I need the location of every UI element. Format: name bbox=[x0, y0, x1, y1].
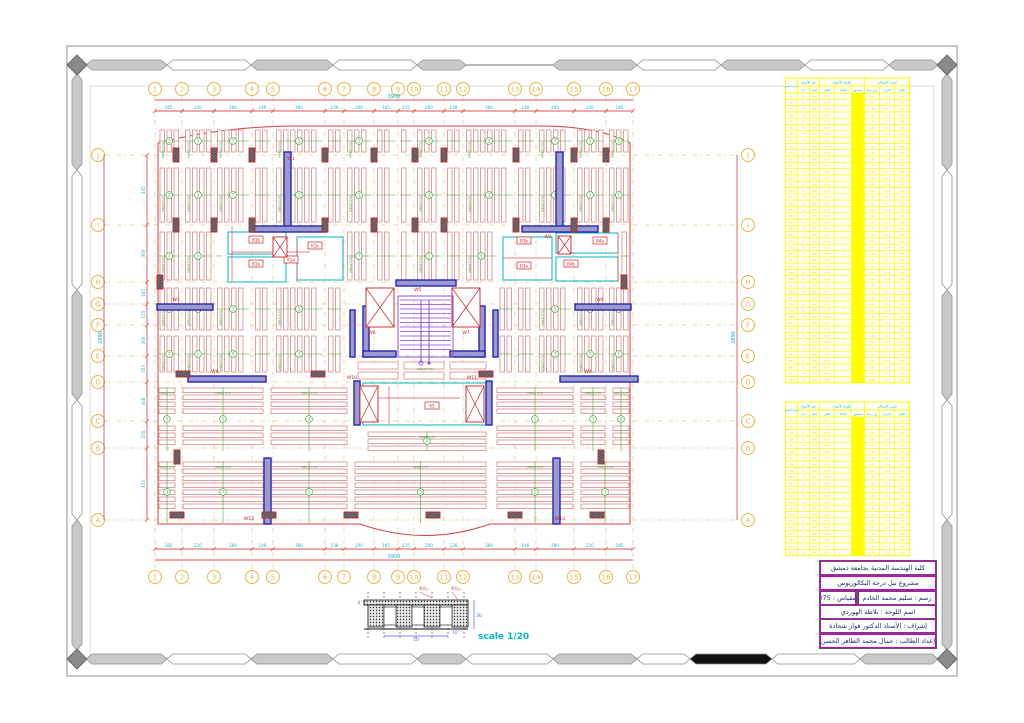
svg-text:4.25: 4.25 bbox=[824, 195, 830, 199]
svg-text:8Φ8@T/70: 8Φ8@T/70 bbox=[613, 391, 629, 395]
svg-text:168: 168 bbox=[899, 170, 905, 174]
svg-text:ـــ: ـــ bbox=[841, 481, 845, 485]
svg-text:8: 8 bbox=[803, 170, 805, 174]
svg-text:4.25: 4.25 bbox=[824, 239, 830, 243]
svg-text:0.40: 0.40 bbox=[869, 309, 875, 313]
svg-text:8: 8 bbox=[803, 359, 805, 363]
svg-text:K1b: K1b bbox=[311, 244, 319, 249]
svg-text:8: 8 bbox=[803, 220, 805, 224]
svg-text:8: 8 bbox=[803, 327, 805, 331]
svg-text:B27: B27 bbox=[789, 258, 795, 262]
svg-text:ـــ: ـــ bbox=[841, 475, 845, 479]
svg-text:ـــ: ـــ bbox=[841, 418, 845, 422]
svg-text:8Φ8@T/70: 8Φ8@T/70 bbox=[219, 355, 223, 371]
svg-text:16: 16 bbox=[602, 85, 611, 93]
svg-text:13.4: 13.4 bbox=[884, 346, 890, 350]
svg-text:Φ8/م: Φ8/م bbox=[419, 586, 429, 591]
svg-text:4.25: 4.25 bbox=[824, 450, 830, 454]
svg-text:13.4: 13.4 bbox=[884, 120, 890, 124]
svg-text:N18: N18 bbox=[789, 525, 795, 529]
svg-text:C: C bbox=[746, 417, 751, 425]
svg-text:B7: B7 bbox=[790, 132, 794, 136]
svg-text:Φ8: Φ8 bbox=[813, 246, 817, 250]
svg-text:2: 2 bbox=[180, 85, 184, 93]
svg-text:اسم العنصر: اسم العنصر bbox=[783, 408, 799, 412]
svg-text:K1a: K1a bbox=[287, 258, 295, 263]
svg-text:4.25: 4.25 bbox=[824, 488, 830, 492]
svg-text:8Φ8@T/70: 8Φ8@T/70 bbox=[301, 391, 317, 395]
svg-text:B1: B1 bbox=[790, 94, 794, 98]
svg-text:8: 8 bbox=[803, 481, 805, 485]
svg-text:ـــ: ـــ bbox=[841, 258, 845, 262]
svg-text:200: 200 bbox=[355, 105, 363, 110]
svg-text:13.4: 13.4 bbox=[884, 488, 890, 492]
svg-text:ـــ: ـــ bbox=[841, 189, 845, 193]
svg-text:ـــ: ـــ bbox=[841, 431, 845, 435]
svg-text:13.4: 13.4 bbox=[884, 519, 890, 523]
svg-text:ـــ: ـــ bbox=[841, 283, 845, 287]
svg-text:N13: N13 bbox=[789, 494, 795, 498]
svg-text:3: 3 bbox=[197, 254, 200, 259]
svg-text:0.40: 0.40 bbox=[869, 346, 875, 350]
svg-text:ـــ: ـــ bbox=[841, 113, 845, 117]
svg-text:ـــ: ـــ bbox=[841, 359, 845, 363]
svg-text:B20: B20 bbox=[789, 214, 795, 218]
svg-text:Φ8: Φ8 bbox=[813, 277, 817, 281]
svg-text:0.40: 0.40 bbox=[869, 258, 875, 262]
svg-text:5: 5 bbox=[358, 139, 361, 144]
svg-text:1: 1 bbox=[298, 307, 301, 312]
svg-text:B3: B3 bbox=[790, 107, 794, 111]
svg-text:8Φ8@T/70: 8Φ8@T/70 bbox=[187, 257, 191, 273]
svg-text:168: 168 bbox=[899, 437, 905, 441]
svg-text:5: 5 bbox=[554, 307, 557, 312]
svg-text:260: 260 bbox=[551, 105, 559, 110]
svg-text:4.25: 4.25 bbox=[824, 321, 830, 325]
svg-text:ـــ: ـــ bbox=[841, 519, 845, 523]
svg-text:14: 14 bbox=[532, 85, 541, 93]
svg-text:ـــ: ـــ bbox=[841, 101, 845, 105]
svg-text:N6: N6 bbox=[790, 450, 794, 454]
svg-text:8: 8 bbox=[803, 296, 805, 300]
svg-text:5: 5 bbox=[232, 352, 235, 357]
svg-text:0.40: 0.40 bbox=[869, 183, 875, 187]
svg-text:13.4: 13.4 bbox=[884, 538, 890, 542]
svg-text:7: 7 bbox=[168, 352, 171, 357]
svg-text:الجزئي: الجزئي bbox=[883, 89, 891, 92]
svg-text:13.4: 13.4 bbox=[884, 164, 890, 168]
svg-text:0.40: 0.40 bbox=[869, 157, 875, 161]
svg-text:ـــ: ـــ bbox=[841, 372, 845, 376]
svg-text:ـــ: ـــ bbox=[841, 365, 845, 369]
svg-text:4.25: 4.25 bbox=[824, 315, 830, 319]
svg-text:Φ8: Φ8 bbox=[813, 302, 817, 306]
svg-text:5: 5 bbox=[166, 417, 169, 422]
svg-text:8: 8 bbox=[803, 444, 805, 448]
svg-text:168: 168 bbox=[899, 481, 905, 485]
svg-text:ـــ: ـــ bbox=[841, 321, 845, 325]
svg-text:0.40: 0.40 bbox=[869, 525, 875, 529]
svg-text:عدد الأسياخ: عدد الأسياخ bbox=[801, 404, 816, 409]
svg-text:B38: B38 bbox=[789, 327, 795, 331]
svg-text:13.4: 13.4 bbox=[884, 271, 890, 275]
svg-text:Φ8: Φ8 bbox=[813, 290, 817, 294]
svg-text:115: 115 bbox=[402, 105, 410, 110]
svg-text:ـــ: ـــ bbox=[841, 271, 845, 275]
svg-text:ـــ: ـــ bbox=[841, 170, 845, 174]
svg-text:0.40: 0.40 bbox=[869, 176, 875, 180]
svg-text:Φ8: Φ8 bbox=[813, 220, 817, 224]
svg-text:ـــ: ـــ bbox=[841, 277, 845, 281]
svg-text:N17: N17 bbox=[789, 519, 795, 523]
svg-text:0.40: 0.40 bbox=[869, 321, 875, 325]
svg-text:Φ8: Φ8 bbox=[813, 239, 817, 243]
svg-text:W8: W8 bbox=[211, 369, 218, 375]
svg-text:168: 168 bbox=[899, 138, 905, 142]
svg-text:4.25: 4.25 bbox=[824, 271, 830, 275]
svg-text:B31: B31 bbox=[789, 283, 795, 287]
svg-text:0.40: 0.40 bbox=[869, 220, 875, 224]
svg-text:الكلي: الكلي bbox=[899, 89, 905, 92]
svg-text:G: G bbox=[95, 300, 100, 308]
svg-text:0.40: 0.40 bbox=[869, 126, 875, 130]
svg-text:4.25: 4.25 bbox=[824, 346, 830, 350]
svg-text:4.25: 4.25 bbox=[824, 283, 830, 287]
svg-text:Φ8: Φ8 bbox=[813, 378, 817, 382]
svg-text:8: 8 bbox=[803, 201, 805, 205]
svg-text:Φ8: Φ8 bbox=[813, 214, 817, 218]
svg-text:1: 1 bbox=[298, 139, 301, 144]
svg-text:13.4: 13.4 bbox=[884, 309, 890, 313]
svg-text:W6: W6 bbox=[368, 330, 375, 336]
svg-text:4: 4 bbox=[250, 85, 255, 93]
svg-text:8: 8 bbox=[803, 462, 805, 466]
svg-text:G: G bbox=[745, 300, 750, 308]
svg-text:8Φ8@T/70: 8Φ8@T/70 bbox=[417, 367, 433, 371]
svg-text:N16: N16 bbox=[789, 513, 795, 517]
svg-text:ـــ: ـــ bbox=[841, 346, 845, 350]
svg-text:8: 8 bbox=[803, 252, 805, 256]
svg-text:Φ8: Φ8 bbox=[813, 195, 817, 199]
svg-text:Φ8: Φ8 bbox=[813, 334, 817, 338]
svg-text:Φ8: Φ8 bbox=[813, 296, 817, 300]
svg-text:8Φ8@T/70: 8Φ8@T/70 bbox=[159, 391, 175, 395]
svg-text:4.25: 4.25 bbox=[824, 500, 830, 504]
svg-text:ـــ: ـــ bbox=[841, 220, 845, 224]
svg-text:8: 8 bbox=[803, 532, 805, 536]
svg-text:0.40: 0.40 bbox=[869, 189, 875, 193]
svg-text:4.25: 4.25 bbox=[824, 507, 830, 511]
svg-text:Φ8: Φ8 bbox=[813, 201, 817, 205]
svg-text:0.40: 0.40 bbox=[869, 246, 875, 250]
svg-text:3: 3 bbox=[554, 352, 557, 357]
svg-text:0.40: 0.40 bbox=[869, 296, 875, 300]
svg-text:4.25: 4.25 bbox=[824, 425, 830, 429]
svg-text:3: 3 bbox=[488, 139, 491, 144]
svg-text:8: 8 bbox=[803, 101, 805, 105]
svg-text:Φ8: Φ8 bbox=[813, 551, 817, 555]
svg-text:8: 8 bbox=[803, 277, 805, 281]
svg-text:Φ8: Φ8 bbox=[813, 513, 817, 517]
svg-text:0.40: 0.40 bbox=[869, 271, 875, 275]
svg-text:Φ8: Φ8 bbox=[813, 126, 817, 130]
svg-text:Φ8: Φ8 bbox=[813, 544, 817, 548]
svg-text:8Φ8@T/70: 8Φ8@T/70 bbox=[187, 355, 191, 371]
svg-text:130: 130 bbox=[450, 543, 458, 548]
svg-text:Φ8: Φ8 bbox=[813, 233, 817, 237]
svg-text:1: 1 bbox=[308, 490, 311, 495]
svg-text:13.4: 13.4 bbox=[884, 138, 890, 142]
svg-text:8: 8 bbox=[803, 538, 805, 542]
svg-text:الشكل: الشكل bbox=[839, 89, 847, 92]
svg-text:8Φ8@T/70: 8Φ8@T/70 bbox=[215, 391, 231, 395]
svg-text:4.25: 4.25 bbox=[824, 227, 830, 231]
svg-text:4.25: 4.25 bbox=[824, 220, 830, 224]
svg-text:0.40: 0.40 bbox=[869, 437, 875, 441]
svg-text:13.4: 13.4 bbox=[884, 475, 890, 479]
svg-text:4.25: 4.25 bbox=[824, 183, 830, 187]
svg-text:0.40: 0.40 bbox=[869, 519, 875, 523]
svg-text:Φ8: Φ8 bbox=[813, 469, 817, 473]
svg-text:13.4: 13.4 bbox=[884, 431, 890, 435]
svg-text:8Φ8@T/70: 8Φ8@T/70 bbox=[527, 391, 543, 395]
svg-text:Φ8: Φ8 bbox=[813, 494, 817, 498]
svg-text:4.25: 4.25 bbox=[824, 113, 830, 117]
svg-text:B4b: B4b bbox=[567, 262, 575, 267]
svg-text:4.25: 4.25 bbox=[824, 107, 830, 111]
svg-text:9: 9 bbox=[396, 85, 400, 93]
svg-text:Φ8: Φ8 bbox=[813, 456, 817, 460]
svg-text:8: 8 bbox=[803, 551, 805, 555]
svg-text:11: 11 bbox=[440, 573, 449, 581]
svg-text:Φ8: Φ8 bbox=[813, 145, 817, 149]
svg-text:0.40: 0.40 bbox=[869, 120, 875, 124]
svg-text:8Φ8@T/70: 8Φ8@T/70 bbox=[278, 196, 282, 212]
svg-text:8: 8 bbox=[803, 113, 805, 117]
svg-text:Φ8: Φ8 bbox=[813, 315, 817, 319]
svg-text:8Φ8@T/70: 8Φ8@T/70 bbox=[611, 310, 615, 326]
svg-text:2: 2 bbox=[534, 490, 537, 495]
svg-text:B37: B37 bbox=[789, 321, 795, 325]
svg-text:7: 7 bbox=[232, 139, 235, 144]
svg-text:13.4: 13.4 bbox=[884, 544, 890, 548]
svg-text:5: 5 bbox=[358, 193, 361, 198]
svg-text:13.4: 13.4 bbox=[884, 494, 890, 498]
svg-text:360: 360 bbox=[295, 543, 303, 548]
svg-text:8Φ8@T/70: 8Φ8@T/70 bbox=[468, 142, 472, 158]
svg-text:0.40: 0.40 bbox=[869, 264, 875, 268]
svg-text:168: 168 bbox=[899, 126, 905, 130]
svg-text:168: 168 bbox=[899, 239, 905, 243]
svg-text:4.25: 4.25 bbox=[824, 145, 830, 149]
svg-text:N11: N11 bbox=[789, 481, 795, 485]
svg-text:ـــ: ـــ bbox=[841, 525, 845, 529]
svg-text:8: 8 bbox=[803, 132, 805, 136]
svg-text:168: 168 bbox=[899, 201, 905, 205]
svg-text:B21: B21 bbox=[789, 220, 795, 224]
svg-text:2: 2 bbox=[168, 254, 171, 259]
svg-text:الشكل: الشكل bbox=[839, 413, 847, 416]
svg-text:13.4: 13.4 bbox=[884, 283, 890, 287]
svg-text:4: 4 bbox=[250, 573, 255, 581]
svg-text:0.40: 0.40 bbox=[869, 113, 875, 117]
svg-text:165: 165 bbox=[382, 543, 390, 548]
svg-text:4.25: 4.25 bbox=[824, 551, 830, 555]
svg-text:عدد: عدد bbox=[801, 89, 806, 92]
svg-text:0.40: 0.40 bbox=[869, 462, 875, 466]
svg-text:B4: B4 bbox=[790, 113, 794, 117]
svg-text:13.4: 13.4 bbox=[884, 101, 890, 105]
svg-text:عدد: عدد bbox=[801, 413, 806, 416]
svg-text:8Φ8@T/70: 8Φ8@T/70 bbox=[527, 465, 543, 469]
svg-text:0.40: 0.40 bbox=[869, 365, 875, 369]
svg-text:168: 168 bbox=[899, 372, 905, 376]
svg-text:13.4: 13.4 bbox=[884, 425, 890, 429]
svg-text:2: 2 bbox=[222, 417, 225, 422]
svg-text:168: 168 bbox=[899, 183, 905, 187]
svg-text:2890: 2890 bbox=[98, 331, 104, 344]
title-block-scale: المقياس : 1/75 bbox=[820, 591, 856, 605]
svg-text:B17: B17 bbox=[789, 195, 795, 199]
svg-text:168: 168 bbox=[899, 450, 905, 454]
svg-text:168: 168 bbox=[899, 507, 905, 511]
svg-text:0.40: 0.40 bbox=[869, 500, 875, 504]
svg-text:8: 8 bbox=[803, 519, 805, 523]
svg-text:168: 168 bbox=[899, 252, 905, 256]
svg-text:13.4: 13.4 bbox=[884, 214, 890, 218]
svg-text:4.25: 4.25 bbox=[824, 302, 830, 306]
svg-text:Φ8: Φ8 bbox=[813, 359, 817, 363]
svg-text:8Φ8@T/70: 8Φ8@T/70 bbox=[611, 196, 615, 212]
svg-text:8: 8 bbox=[803, 302, 805, 306]
svg-text:ـــ: ـــ bbox=[841, 246, 845, 250]
svg-text:8Φ8@T/70: 8Φ8@T/70 bbox=[597, 465, 613, 469]
svg-text:B46: B46 bbox=[789, 378, 795, 382]
svg-text:4.25: 4.25 bbox=[824, 456, 830, 460]
svg-text:5: 5 bbox=[419, 490, 422, 495]
svg-text:ـــ: ـــ bbox=[841, 513, 845, 517]
svg-text:0.40: 0.40 bbox=[869, 372, 875, 376]
svg-text:13.4: 13.4 bbox=[884, 315, 890, 319]
svg-text:3: 3 bbox=[212, 85, 216, 93]
svg-text:B: B bbox=[96, 444, 101, 452]
svg-text:8: 8 bbox=[803, 469, 805, 473]
svg-text:8: 8 bbox=[803, 494, 805, 498]
svg-text:ـــ: ـــ bbox=[841, 551, 845, 555]
svg-text:168: 168 bbox=[899, 327, 905, 331]
svg-text:8: 8 bbox=[803, 227, 805, 231]
svg-text:168: 168 bbox=[899, 296, 905, 300]
title-block-drafter: رسم : سليم محمد الخادم bbox=[858, 591, 936, 605]
svg-text:4.25: 4.25 bbox=[824, 120, 830, 124]
svg-text:ـــ: ـــ bbox=[841, 227, 845, 231]
svg-text:8: 8 bbox=[803, 176, 805, 180]
svg-text:168: 168 bbox=[899, 189, 905, 193]
svg-text:Φ8: Φ8 bbox=[813, 264, 817, 268]
svg-text:Φ8: Φ8 bbox=[813, 500, 817, 504]
svg-text:8Φ8@T/70: 8Φ8@T/70 bbox=[159, 465, 175, 469]
svg-text:B11: B11 bbox=[789, 157, 795, 161]
svg-text:4.25: 4.25 bbox=[824, 277, 830, 281]
svg-text:17: 17 bbox=[629, 573, 638, 581]
svg-text:5: 5 bbox=[271, 573, 275, 581]
svg-text:B18: B18 bbox=[789, 201, 795, 205]
svg-text:Φ8: Φ8 bbox=[813, 176, 817, 180]
svg-text:4.25: 4.25 bbox=[824, 176, 830, 180]
svg-text:Φ8: Φ8 bbox=[813, 107, 817, 111]
svg-text:Φ8: Φ8 bbox=[813, 151, 817, 155]
svg-text:3: 3 bbox=[166, 490, 169, 495]
svg-text:ـــ: ـــ bbox=[841, 296, 845, 300]
svg-text:ـــ: ـــ bbox=[841, 195, 845, 199]
svg-text:0.40: 0.40 bbox=[869, 353, 875, 357]
svg-text:8Φ8@T/70: 8Φ8@T/70 bbox=[219, 142, 223, 158]
svg-text:13.4: 13.4 bbox=[884, 170, 890, 174]
svg-text:360: 360 bbox=[485, 543, 493, 548]
svg-text:4.25: 4.25 bbox=[824, 296, 830, 300]
svg-text:0.40: 0.40 bbox=[869, 208, 875, 212]
svg-text:10: 10 bbox=[452, 630, 458, 635]
svg-text:8: 8 bbox=[803, 365, 805, 369]
svg-text:Φ8: Φ8 bbox=[813, 444, 817, 448]
svg-text:7: 7 bbox=[358, 254, 361, 259]
svg-text:ـــ: ـــ bbox=[841, 132, 845, 136]
svg-text:Φ8: Φ8 bbox=[813, 132, 817, 136]
svg-text:8: 8 bbox=[372, 85, 376, 93]
svg-text:Φ8: Φ8 bbox=[813, 425, 817, 429]
svg-text:7: 7 bbox=[426, 439, 429, 444]
svg-text:1: 1 bbox=[617, 352, 620, 357]
svg-text:ـــ: ـــ bbox=[841, 437, 845, 441]
svg-text:5: 5 bbox=[617, 139, 620, 144]
svg-text:415: 415 bbox=[141, 480, 146, 488]
svg-text:8: 8 bbox=[803, 315, 805, 319]
svg-text:E: E bbox=[746, 352, 750, 360]
svg-text:13.4: 13.4 bbox=[884, 507, 890, 511]
svg-text:8Φ8@T/70: 8Φ8@T/70 bbox=[161, 142, 165, 158]
svg-text:B16: B16 bbox=[789, 189, 795, 193]
svg-text:Φ8: Φ8 bbox=[813, 321, 817, 325]
svg-text:Φ8: Φ8 bbox=[813, 271, 817, 275]
svg-text:13.4: 13.4 bbox=[884, 157, 890, 161]
svg-text:B28: B28 bbox=[789, 264, 795, 268]
svg-text:4.25: 4.25 bbox=[824, 170, 830, 174]
svg-text:8: 8 bbox=[803, 334, 805, 338]
svg-text:130: 130 bbox=[331, 543, 339, 548]
svg-text:ـــ: ـــ bbox=[841, 462, 845, 466]
svg-text:4.25: 4.25 bbox=[824, 431, 830, 435]
svg-text:0.40: 0.40 bbox=[869, 138, 875, 142]
svg-text:Φ8: Φ8 bbox=[813, 208, 817, 212]
svg-text:4.25: 4.25 bbox=[824, 246, 830, 250]
svg-text:50: 50 bbox=[413, 637, 419, 643]
svg-text:Φ8: Φ8 bbox=[813, 431, 817, 435]
svg-text:المجموع: المجموع bbox=[853, 413, 862, 416]
svg-text:قطر: قطر bbox=[811, 89, 818, 92]
svg-text:N7: N7 bbox=[790, 456, 794, 460]
svg-text:B36: B36 bbox=[789, 315, 795, 319]
svg-text:Φ8: Φ8 bbox=[813, 340, 817, 344]
svg-text:ـــ: ـــ bbox=[841, 488, 845, 492]
svg-text:13.4: 13.4 bbox=[884, 365, 890, 369]
svg-text:0.40: 0.40 bbox=[869, 170, 875, 174]
svg-text:B22: B22 bbox=[789, 227, 795, 231]
svg-text:ـــ: ـــ bbox=[841, 183, 845, 187]
svg-text:7: 7 bbox=[342, 85, 346, 93]
svg-text:4.25: 4.25 bbox=[824, 164, 830, 168]
svg-text:0.40: 0.40 bbox=[869, 201, 875, 205]
svg-text:8Φ8@T/70: 8Φ8@T/70 bbox=[301, 465, 317, 469]
